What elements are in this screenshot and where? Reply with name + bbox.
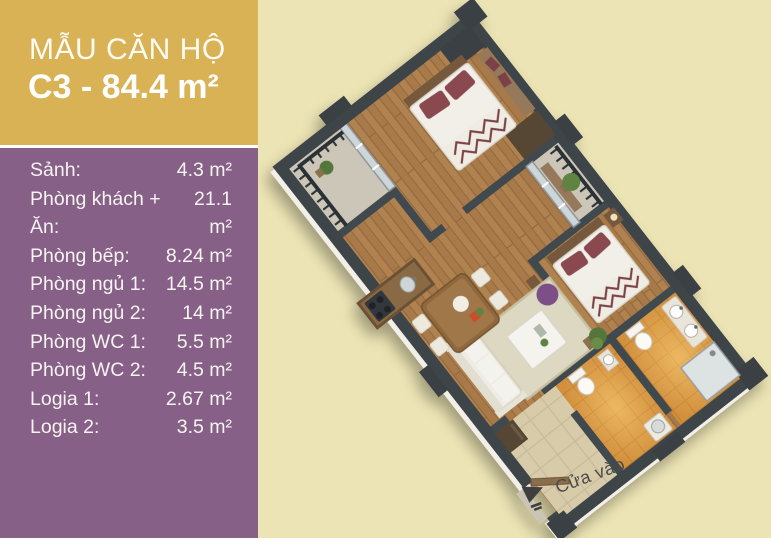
room-area-row: Sảnh:4.3 m²: [0, 156, 258, 185]
room-value: 14.5 m²: [166, 270, 232, 299]
room-value: 5.5 m²: [177, 328, 232, 357]
room-area-row: Phòng khách + Ăn:21.1 m²: [0, 185, 258, 242]
room-label: Sảnh:: [30, 156, 81, 185]
room-value: 8.24 m²: [166, 242, 232, 271]
room-areas-panel: Sảnh:4.3 m² Phòng khách + Ăn:21.1 m² Phò…: [0, 148, 258, 538]
room-label: Phòng WC 2:: [30, 356, 146, 385]
page: MẪU CĂN HỘ C3 - 84.4 m² Sảnh:4.3 m² Phòn…: [0, 0, 771, 541]
room-area-row: Phòng ngủ 2:14 m²: [0, 299, 258, 328]
room-label: Phòng khách + Ăn:: [30, 185, 174, 242]
title-banner: MẪU CĂN HỘ C3 - 84.4 m²: [0, 0, 258, 145]
room-area-row: Phòng WC 1:5.5 m²: [0, 328, 258, 357]
room-label: Phòng bếp:: [30, 242, 130, 271]
room-value: 14 m²: [182, 299, 232, 328]
floor-plan: [258, 0, 771, 538]
room-value: 2.67 m²: [166, 385, 232, 414]
room-label: Phòng ngủ 1:: [30, 270, 146, 299]
room-label: Logia 2:: [30, 413, 99, 442]
info-panel: MẪU CĂN HỘ C3 - 84.4 m² Sảnh:4.3 m² Phòn…: [0, 0, 258, 541]
room-label: Phòng WC 1:: [30, 328, 146, 357]
room-area-row: Phòng ngủ 1:14.5 m²: [0, 270, 258, 299]
room-value: 4.5 m²: [177, 356, 232, 385]
apartment-type-title: MẪU CĂN HỘ: [29, 33, 226, 67]
room-area-row: Logia 2:3.5 m²: [0, 413, 258, 442]
room-value: 4.3 m²: [177, 156, 232, 185]
room-area-row: Phòng bếp:8.24 m²: [0, 242, 258, 271]
room-value: 3.5 m²: [177, 413, 232, 442]
apartment-area-subtitle: C3 - 84.4 m²: [28, 68, 219, 107]
room-area-row: Logia 1:2.67 m²: [0, 385, 258, 414]
room-area-row: Phòng WC 2:4.5 m²: [0, 356, 258, 385]
floor-plan-area: Cửa vào: [258, 0, 771, 538]
apartment-building: [258, 0, 770, 538]
room-label: Logia 1:: [30, 385, 99, 414]
room-value: 21.1 m²: [174, 185, 232, 242]
room-label: Phòng ngủ 2:: [30, 299, 146, 328]
